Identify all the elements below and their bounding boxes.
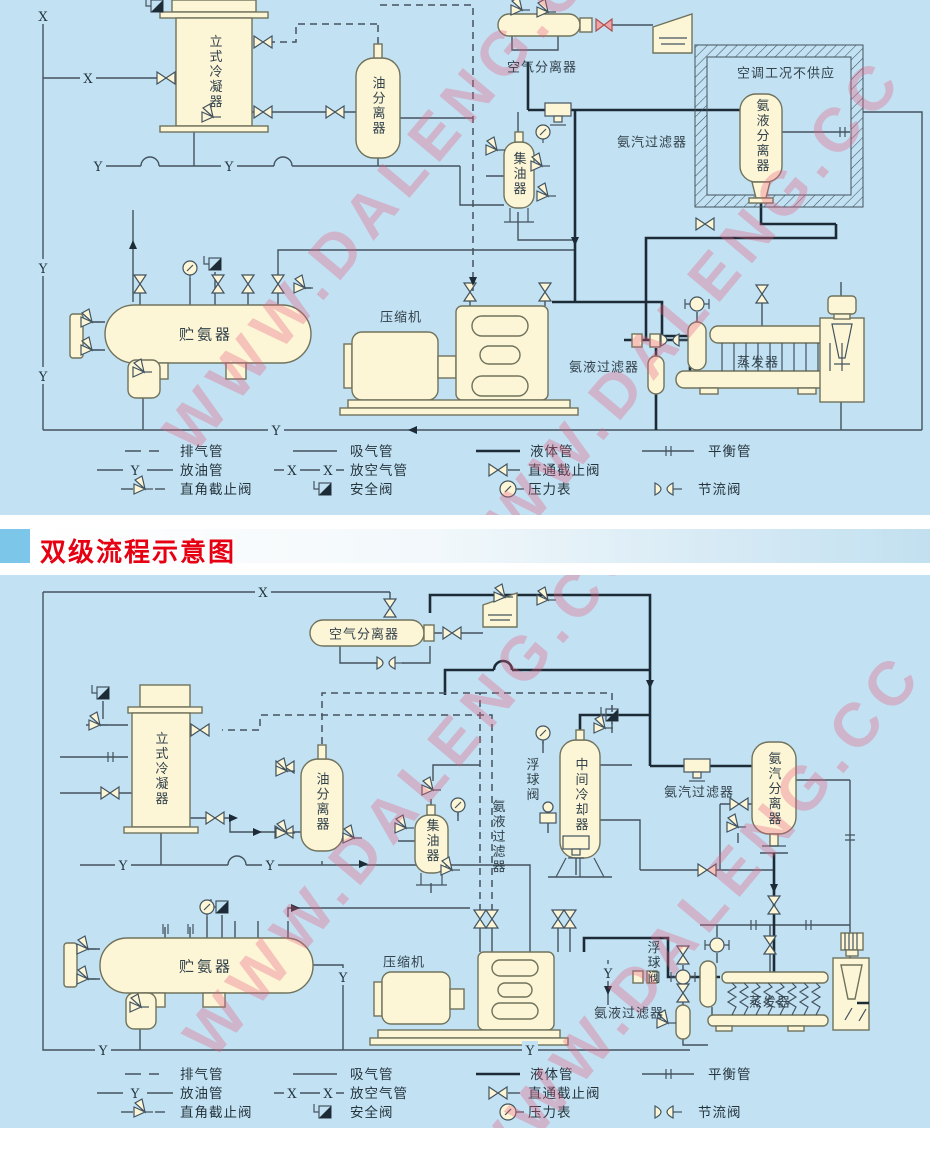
angle-valve-icon bbox=[343, 825, 362, 843]
two-stage-panel: XYYYYYY排气管吸气管液体管平衡管Y放油管XX放空气管直通截止阀直角截止阀安… bbox=[0, 575, 930, 1128]
flow-arrow bbox=[253, 828, 262, 836]
angle-valve-icon bbox=[531, 153, 550, 171]
legend-item: 吸气管 bbox=[293, 444, 394, 460]
label-intercooler: 中间冷却器 bbox=[571, 758, 590, 833]
angle-valve-icon bbox=[134, 1099, 153, 1117]
legend-label: 放空气管 bbox=[350, 463, 408, 479]
valve-icon bbox=[486, 910, 498, 928]
equipment bbox=[64, 593, 869, 1045]
valve-icon bbox=[101, 787, 119, 799]
svg-text:X: X bbox=[83, 72, 93, 87]
valve-icon bbox=[756, 285, 768, 303]
svg-text:X: X bbox=[323, 1087, 333, 1102]
label-ammonia-liquid-separator: 氨液分离器 bbox=[752, 99, 771, 174]
safety-valve-icon bbox=[92, 685, 109, 699]
angle-valve-icon bbox=[486, 137, 505, 155]
legend-label: 直通截止阀 bbox=[528, 1086, 601, 1102]
legend-item: 直角截止阀 bbox=[121, 476, 253, 498]
legend-item: Y放油管 bbox=[97, 463, 224, 479]
angle-valve-icon bbox=[89, 712, 108, 730]
valve-icon bbox=[677, 984, 689, 1002]
svg-text:Y: Y bbox=[130, 464, 140, 479]
flow-arrow bbox=[646, 680, 654, 689]
angle-valve-icon bbox=[422, 777, 441, 795]
throttle-valve-icon bbox=[655, 483, 682, 495]
pressure-gauge-icon bbox=[200, 900, 214, 918]
svg-text:X: X bbox=[258, 586, 268, 601]
svg-text:X: X bbox=[323, 464, 333, 479]
flow-arrow bbox=[571, 237, 579, 246]
valve-icon bbox=[677, 946, 689, 964]
pressure-gauge-icon bbox=[451, 798, 465, 816]
valve-icon bbox=[242, 275, 254, 293]
valve-icon bbox=[443, 627, 461, 639]
legend-item: 直通截止阀 bbox=[489, 463, 601, 479]
legend-label: 节流阀 bbox=[698, 1105, 742, 1121]
label-air-separator: 空气分离器 bbox=[507, 57, 577, 76]
flow-arrow bbox=[129, 240, 137, 249]
legend-label: 吸气管 bbox=[350, 1067, 394, 1083]
label-ammonia-liquid-filter: 氨液过滤器 bbox=[594, 1003, 664, 1022]
pipe-marker: Y bbox=[221, 157, 237, 175]
svg-text:Y: Y bbox=[603, 967, 613, 982]
legend-label: 压力表 bbox=[528, 1105, 572, 1121]
pipe-marker: Y bbox=[522, 1041, 538, 1059]
svg-text:X: X bbox=[38, 10, 48, 25]
valve-icon bbox=[696, 218, 714, 230]
label-float-valve-lower: 浮球阀 bbox=[643, 941, 662, 986]
pipe-marker: Y bbox=[262, 856, 278, 874]
safety-valve-icon bbox=[204, 256, 221, 270]
valve-icon bbox=[489, 464, 507, 476]
legend-label: 排气管 bbox=[180, 1067, 224, 1083]
pipe-marker: Y bbox=[268, 421, 284, 439]
legend-label: 直通截止阀 bbox=[528, 463, 601, 479]
legend-item: 排气管 bbox=[125, 444, 224, 460]
legend-label: 平衡管 bbox=[708, 444, 752, 460]
pipe-bridge bbox=[494, 661, 512, 673]
svg-text:Y: Y bbox=[38, 370, 48, 385]
round-valve-icon bbox=[685, 297, 709, 311]
pipe-marker: Y bbox=[90, 157, 106, 175]
label-ammonia-vapor-filter: 氨汽过滤器 bbox=[617, 132, 687, 151]
legend-item: Y放油管 bbox=[97, 1086, 224, 1102]
legend-label: 放空气管 bbox=[350, 1086, 408, 1102]
legend-label: 排气管 bbox=[180, 444, 224, 460]
section-divider: 双级流程示意图 bbox=[0, 515, 930, 575]
legend-item: 直角截止阀 bbox=[121, 1099, 253, 1121]
angle-valve-icon bbox=[537, 183, 556, 201]
legend-item: 液体管 bbox=[476, 444, 574, 460]
valve-icon bbox=[768, 896, 780, 914]
pipe-bridge bbox=[228, 856, 246, 868]
pipe-marker: X bbox=[80, 69, 96, 87]
legend-label: 放油管 bbox=[180, 1086, 224, 1102]
pipe-marker: Y bbox=[335, 968, 351, 986]
svg-text:Y: Y bbox=[525, 1044, 535, 1059]
legend-label: 安全阀 bbox=[350, 1104, 394, 1121]
valve-icon bbox=[698, 864, 716, 876]
valve-icon bbox=[539, 283, 551, 301]
red-valve-icon bbox=[596, 19, 612, 31]
legend-label: 放油管 bbox=[180, 463, 224, 479]
label-compressor: 压缩机 bbox=[380, 307, 422, 326]
angle-valve-icon bbox=[77, 966, 96, 984]
valve-icon bbox=[384, 599, 396, 617]
label-vertical-condenser: 立式冷凝器 bbox=[205, 35, 224, 110]
pipe-marker: Y bbox=[600, 964, 616, 982]
angle-valve-icon bbox=[81, 309, 100, 327]
label-oil-collector: 集油器 bbox=[509, 152, 528, 197]
legend-item: XX放空气管 bbox=[274, 1086, 408, 1102]
valve-icon bbox=[206, 812, 224, 824]
label-ammonia-vapor-filter: 氨汽过滤器 bbox=[664, 782, 734, 801]
svg-text:X: X bbox=[287, 1087, 297, 1102]
label-float-valve-upper: 浮球阀 bbox=[522, 758, 541, 803]
angle-valve-icon bbox=[727, 814, 746, 832]
page: XXYYYYY排气管吸气管液体管平衡管Y放油管XX放空气管直通截止阀直角截止阀安… bbox=[0, 0, 930, 1152]
legend-item: 吸气管 bbox=[293, 1067, 394, 1083]
round-valve-icon bbox=[705, 938, 729, 952]
valve-icon bbox=[212, 275, 224, 293]
pressure-gauge-icon bbox=[183, 261, 197, 279]
flow-arrow bbox=[229, 814, 238, 822]
pipes-discharge-dashed bbox=[222, 693, 612, 911]
svg-text:Y: Y bbox=[265, 859, 275, 874]
label-oil-collector: 集油器 bbox=[422, 819, 441, 864]
valve-icon bbox=[254, 36, 272, 48]
pipe-marker: Y bbox=[35, 367, 51, 385]
label-ac-note: 空调工况不供应 bbox=[737, 63, 835, 82]
svg-text:Y: Y bbox=[93, 160, 103, 175]
legend-item: 节流阀 bbox=[655, 482, 742, 498]
flow-arrow bbox=[408, 426, 417, 434]
legend-item: 安全阀 bbox=[314, 481, 394, 498]
angle-valve-icon bbox=[81, 337, 100, 355]
legend-item: 压力表 bbox=[500, 1104, 572, 1121]
pipe-marker: X bbox=[35, 7, 51, 25]
pressure-gauge-icon bbox=[536, 125, 550, 143]
legend-item: 液体管 bbox=[476, 1067, 574, 1083]
legend-item: 排气管 bbox=[125, 1067, 224, 1083]
safety-valve-icon bbox=[314, 481, 331, 495]
svg-text:Y: Y bbox=[224, 160, 234, 175]
legend-label: 节流阀 bbox=[698, 482, 742, 498]
svg-text:Y: Y bbox=[118, 859, 128, 874]
safety-valve-icon bbox=[146, 0, 163, 12]
flow-arrow bbox=[291, 904, 300, 912]
legend-item: 节流阀 bbox=[655, 1105, 742, 1121]
angle-valve-icon bbox=[441, 857, 460, 875]
section-title: 双级流程示意图 bbox=[40, 532, 930, 569]
legend-label: 直角截止阀 bbox=[180, 482, 253, 498]
legend-item: 平衡管 bbox=[642, 1067, 752, 1083]
legend-item: 压力表 bbox=[500, 481, 572, 498]
svg-text:X: X bbox=[287, 464, 297, 479]
valve-icon bbox=[157, 72, 175, 84]
pipe-bridge bbox=[141, 157, 159, 169]
label-ammonia-receiver: 贮氨器 bbox=[179, 956, 233, 977]
label-oil-separator: 油分离器 bbox=[368, 76, 387, 136]
label-ammonia-receiver: 贮氨器 bbox=[179, 324, 233, 345]
label-evaporator: 蒸发器 bbox=[749, 992, 791, 1011]
valve-icon bbox=[564, 910, 576, 928]
title-chip bbox=[0, 529, 30, 563]
svg-text:Y: Y bbox=[130, 1087, 140, 1102]
throttle-valve-icon bbox=[377, 657, 404, 669]
valve-icon bbox=[272, 275, 284, 293]
legend-label: 液体管 bbox=[530, 1067, 574, 1083]
label-oil-separator: 油分离器 bbox=[312, 772, 331, 832]
legend-label: 平衡管 bbox=[708, 1067, 752, 1083]
legend-label: 吸气管 bbox=[350, 444, 394, 460]
angle-valve-icon bbox=[294, 275, 313, 293]
single-stage-panel: XXYYYYY排气管吸气管液体管平衡管Y放油管XX放空气管直通截止阀直角截止阀安… bbox=[0, 0, 930, 515]
valve-icon bbox=[134, 275, 146, 293]
valve-icon bbox=[552, 910, 564, 928]
flow-arrow bbox=[770, 884, 778, 893]
filter-icon bbox=[545, 103, 571, 125]
legend-label: 安全阀 bbox=[350, 481, 394, 498]
svg-text:Y: Y bbox=[38, 262, 48, 277]
legend: 排气管吸气管液体管平衡管Y放油管XX放空气管直通截止阀直角截止阀安全阀压力表节流… bbox=[97, 1067, 752, 1121]
legend-label: 液体管 bbox=[530, 444, 574, 460]
legend-item: 安全阀 bbox=[314, 1104, 394, 1121]
valve-icon bbox=[254, 106, 272, 118]
flow-arrow bbox=[604, 986, 612, 995]
title-band: 双级流程示意图 bbox=[30, 529, 930, 563]
legend-label: 直角截止阀 bbox=[180, 1105, 253, 1121]
label-compressor: 压缩机 bbox=[383, 952, 425, 971]
two-stage-diagram: XYYYYYY排气管吸气管液体管平衡管Y放油管XX放空气管直通截止阀直角截止阀安… bbox=[0, 575, 930, 1128]
float-valve-icon bbox=[540, 802, 556, 823]
safety-valve-icon bbox=[314, 1104, 331, 1118]
label-evaporator: 蒸发器 bbox=[737, 352, 779, 371]
valve-icon bbox=[326, 106, 344, 118]
round-valve-icon bbox=[671, 970, 695, 984]
pipe-marker: Y bbox=[35, 259, 51, 277]
label-ammonia-liquid-filter-mid: 氨液过滤器 bbox=[488, 800, 507, 875]
legend-label: 压力表 bbox=[528, 482, 572, 498]
filter-icon bbox=[684, 759, 710, 781]
throttle-valve-icon bbox=[655, 1106, 682, 1118]
angle-valve-icon bbox=[395, 815, 414, 833]
valve-icon bbox=[191, 724, 209, 736]
svg-text:Y: Y bbox=[271, 424, 281, 439]
pipe-marker: X bbox=[255, 583, 271, 601]
label-air-separator: 空气分离器 bbox=[329, 624, 399, 643]
angle-valve-icon bbox=[511, 0, 530, 15]
pipe-marker: Y bbox=[115, 856, 131, 874]
legend: 排气管吸气管液体管平衡管Y放油管XX放空气管直通截止阀直角截止阀安全阀压力表节流… bbox=[97, 444, 752, 498]
legend-item: 平衡管 bbox=[642, 444, 752, 460]
pipe-marker: Y bbox=[95, 1041, 111, 1059]
legend-item: XX放空气管 bbox=[274, 463, 408, 479]
label-ammonia-liquid-filter: 氨液过滤器 bbox=[569, 357, 639, 376]
label-vertical-condenser: 立式冷凝器 bbox=[151, 732, 170, 807]
pipe-bridge bbox=[274, 157, 292, 169]
svg-text:Y: Y bbox=[338, 971, 348, 986]
flow-arrow bbox=[359, 860, 368, 868]
valve-icon bbox=[474, 910, 486, 928]
angle-valve-icon bbox=[134, 476, 153, 494]
angle-valve-icon bbox=[77, 936, 96, 954]
pressure-gauge-icon bbox=[536, 726, 550, 744]
valve-icon bbox=[489, 1087, 507, 1099]
svg-text:Y: Y bbox=[98, 1044, 108, 1059]
symbols: XXYYYYY排气管吸气管液体管平衡管Y放油管XX放空气管直通截止阀直角截止阀安… bbox=[35, 0, 845, 498]
legend-item: 直通截止阀 bbox=[489, 1086, 601, 1102]
valve-icon bbox=[464, 283, 476, 301]
label-ammonia-vapor-separator: 氨汽分离器 bbox=[764, 752, 783, 827]
